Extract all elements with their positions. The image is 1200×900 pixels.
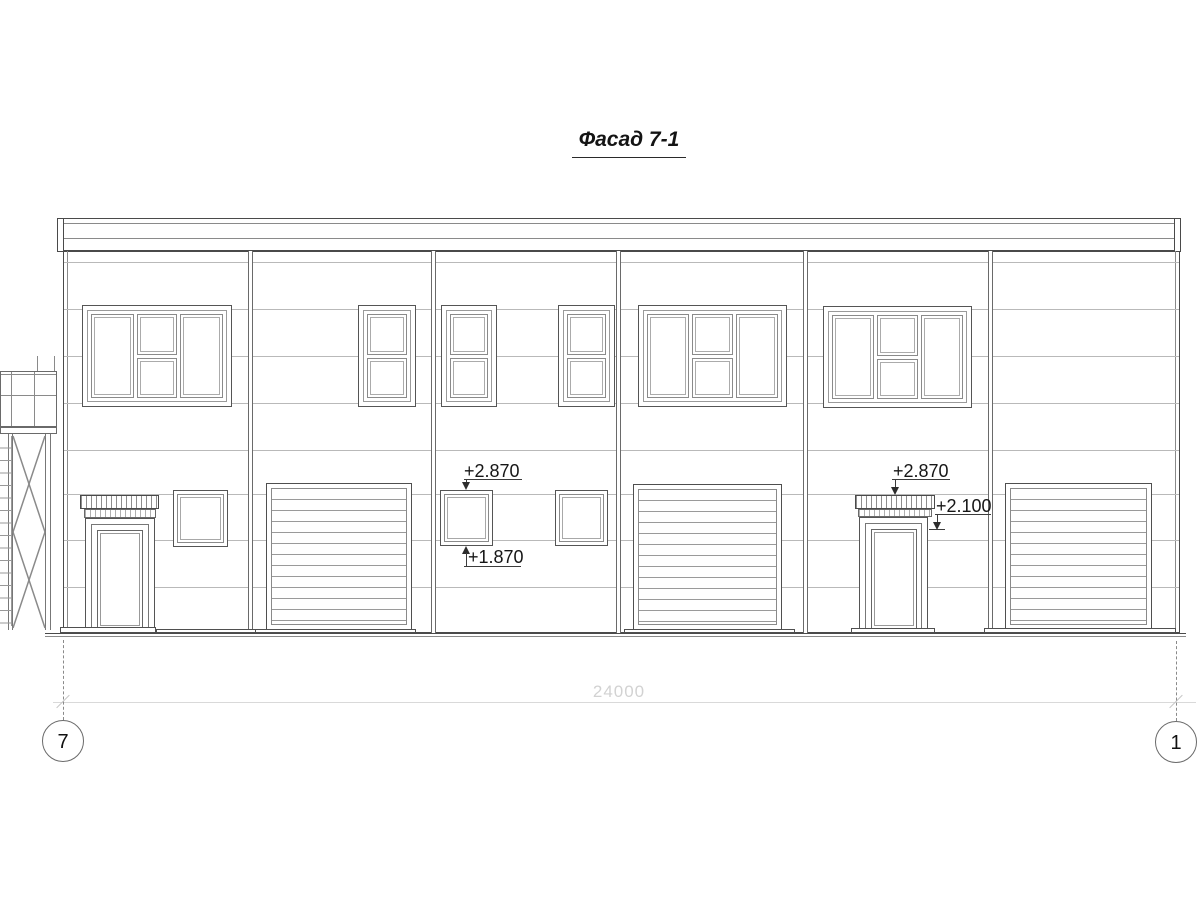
drawing-title: Фасад 7-1 xyxy=(572,128,686,158)
leader-line xyxy=(464,479,522,480)
level-tick-line xyxy=(929,529,945,530)
plinth-strip xyxy=(255,629,416,633)
column-line xyxy=(988,251,993,633)
railing-post xyxy=(11,372,12,426)
window-triple xyxy=(82,305,232,407)
stair-railing xyxy=(0,371,57,427)
plinth-strip xyxy=(156,629,259,633)
axis-bubble-1: 1 xyxy=(1155,721,1197,763)
dimension-label: 24000 xyxy=(559,682,679,702)
garage-door xyxy=(633,484,782,630)
roof-band-line xyxy=(58,238,1179,239)
leader-line xyxy=(892,479,950,480)
garage-door xyxy=(266,483,412,630)
ground-line xyxy=(45,633,1186,634)
plinth-strip xyxy=(984,628,1176,633)
door-canopy-fascia xyxy=(84,509,156,518)
door-canopy xyxy=(855,495,935,509)
siding-line xyxy=(64,450,1179,451)
railing-line xyxy=(1,395,56,396)
column-line xyxy=(803,251,808,633)
entry-door-leaf-inner xyxy=(874,532,914,626)
plinth-strip xyxy=(624,629,795,633)
window-triple xyxy=(638,305,787,407)
stair-post-stub xyxy=(54,356,55,371)
axis-line xyxy=(63,640,64,720)
window-small xyxy=(555,490,608,546)
window-double xyxy=(558,305,615,407)
window-triple xyxy=(823,306,972,408)
facade-drawing-sheet: Фасад 7-1 xyxy=(0,0,1200,900)
roof-band-end-right xyxy=(1174,218,1181,252)
stair-post-stub xyxy=(37,356,38,371)
plinth-strip xyxy=(60,627,156,633)
roof-band-end-left xyxy=(57,218,64,252)
dimension-line xyxy=(53,702,1196,703)
column-line xyxy=(616,251,621,633)
leader-line xyxy=(466,553,467,566)
elevation-arrow xyxy=(891,487,899,495)
ground-line-secondary xyxy=(45,636,1186,637)
railing-post xyxy=(34,372,35,426)
axis-line xyxy=(1176,641,1177,721)
window-small xyxy=(173,490,228,547)
stair-ladder xyxy=(0,436,12,626)
elevation-label: +1.870 xyxy=(468,547,524,568)
leader-line xyxy=(935,514,991,515)
entry-door-leaf-inner xyxy=(100,533,140,626)
door-canopy xyxy=(80,495,159,509)
roof-band-line xyxy=(58,223,1179,224)
leader-line xyxy=(464,566,521,567)
window-small xyxy=(440,490,493,546)
window-double xyxy=(358,305,416,407)
door-canopy-fascia xyxy=(858,509,932,517)
plinth-strip xyxy=(851,628,935,633)
railing-line xyxy=(1,374,56,375)
window-double xyxy=(441,305,497,407)
elevation-arrow xyxy=(462,482,470,490)
column-line xyxy=(248,251,253,633)
column-line xyxy=(431,251,436,633)
garage-door xyxy=(1005,483,1152,630)
axis-bubble-7: 7 xyxy=(42,720,84,762)
siding-line xyxy=(64,262,1179,263)
stair-platform-edge xyxy=(0,427,57,434)
roof-band xyxy=(57,218,1180,251)
